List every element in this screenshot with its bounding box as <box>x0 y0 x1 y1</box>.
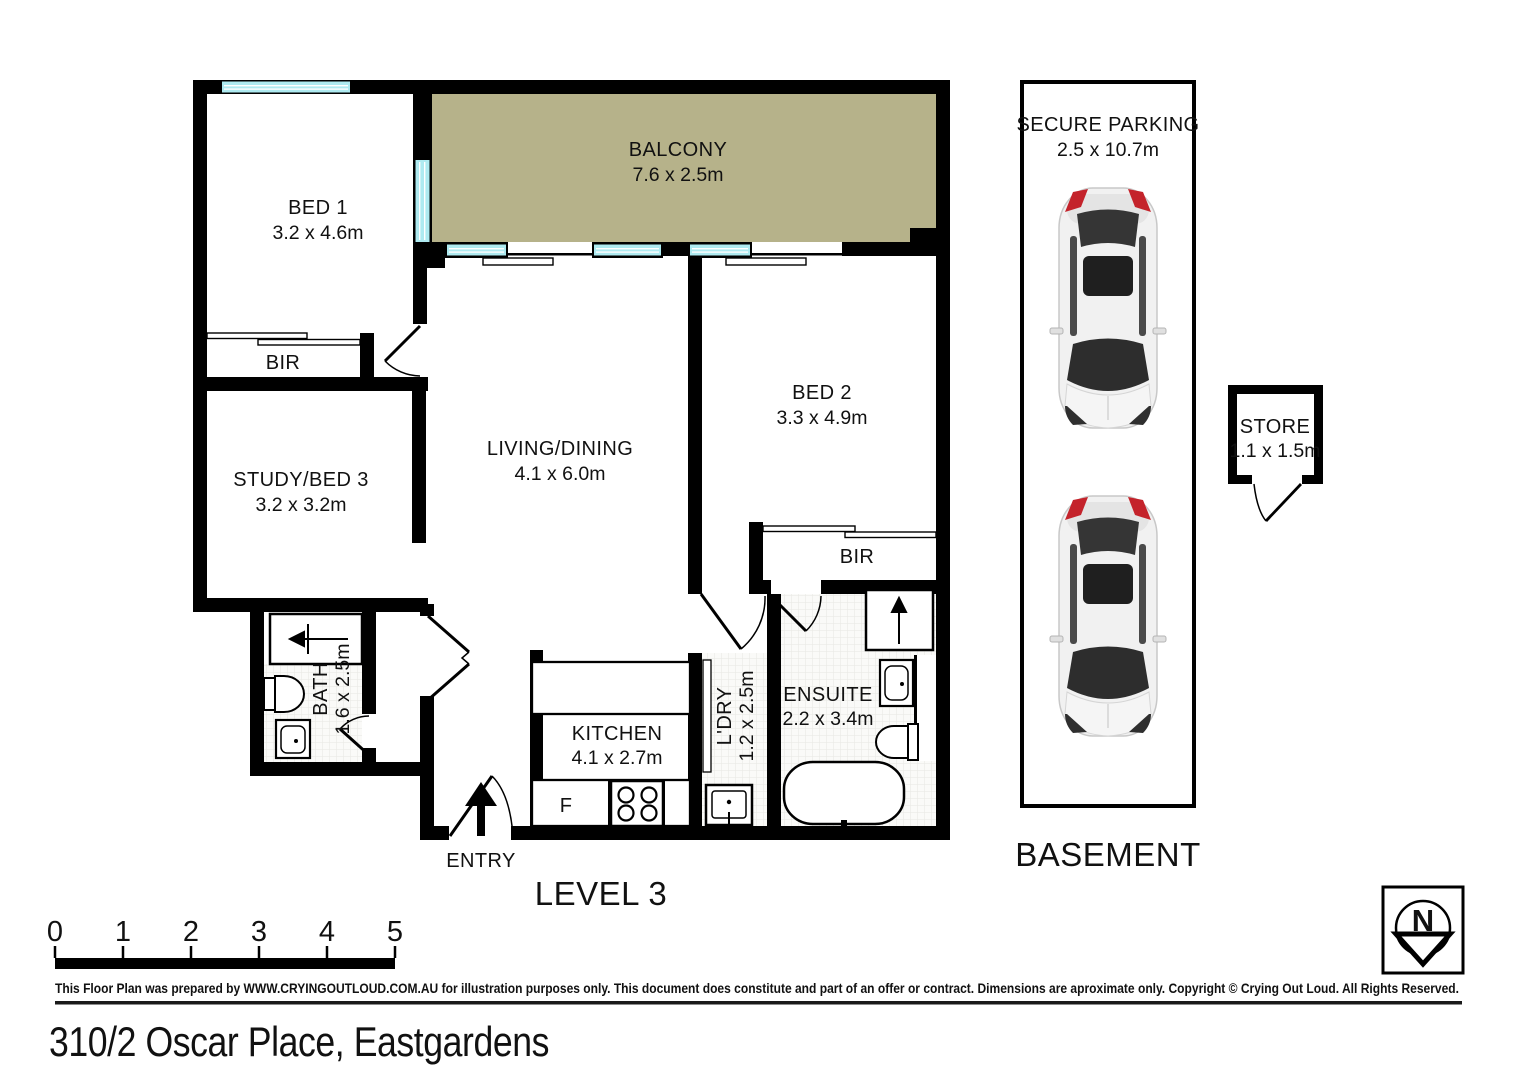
room-balcony-label: BALCONY <box>629 139 727 161</box>
car-1 <box>1050 188 1166 428</box>
room-kitchen-dims: 4.1 x 2.7m <box>571 747 662 769</box>
scale-tick-3: 3 <box>251 916 267 948</box>
parking-dims: 2.5 x 10.7m <box>1057 139 1159 161</box>
room-bed2-dims: 3.3 x 4.9m <box>776 407 867 429</box>
room-ensuite-label: ENSUITE <box>783 684 872 706</box>
level3-label: LEVEL 3 <box>535 875 668 912</box>
room-study-label: STUDY/BED 3 <box>233 469 369 491</box>
window-balcony-door-2 <box>592 242 663 258</box>
room-study-dims: 3.2 x 3.2m <box>255 494 346 516</box>
north-letter: N <box>1412 903 1434 938</box>
kitchen-counter <box>532 662 690 714</box>
room-bath-dims: 1.6 x 2.5m <box>332 643 354 734</box>
room-bed2-label: BED 2 <box>792 382 852 404</box>
window-balcony-door-1 <box>445 242 508 258</box>
room-bed1-label: BED 1 <box>288 197 348 219</box>
floor-plan-page: BED 1 3.2 x 4.6m BALCONY 7.6 x 2.5m BED … <box>0 0 1534 1084</box>
laundry-door-panel <box>703 660 711 772</box>
bir2-track <box>763 526 855 532</box>
room-bir1-label: BIR <box>266 352 301 374</box>
room-kitchen-label: KITCHEN <box>572 723 663 745</box>
balcony-track-1 <box>483 258 553 265</box>
store-label: STORE <box>1240 416 1311 438</box>
bir1-track <box>258 340 360 346</box>
bathtub-icon <box>784 762 904 832</box>
scale-tick-2: 2 <box>183 916 199 948</box>
room-bath-label: BATH <box>310 662 332 715</box>
window-bed1 <box>222 82 350 93</box>
parking-label: SECURE PARKING <box>1016 114 1199 136</box>
store-dims: 1.1 x 1.5m <box>1229 440 1320 462</box>
scale-bar: 0 1 2 3 4 5 <box>47 916 403 969</box>
scale-tick-4: 4 <box>319 916 335 948</box>
window-balcony-door-3 <box>688 242 752 258</box>
bir1-track <box>207 333 307 339</box>
car-2 <box>1050 496 1166 736</box>
door-bed1 <box>385 326 420 376</box>
scale-tick-0: 0 <box>47 916 63 948</box>
footer-divider <box>55 1001 1462 1005</box>
toilet-icon <box>876 724 918 760</box>
room-balcony-dims: 7.6 x 2.5m <box>632 164 723 186</box>
basement-label: BASEMENT <box>1015 836 1201 873</box>
door-bed2 <box>701 594 765 649</box>
stove-icon <box>611 781 663 826</box>
fridge-label: F <box>560 795 573 817</box>
bir2-track <box>845 532 936 538</box>
room-living-dims: 4.1 x 6.0m <box>514 463 605 485</box>
basement-section: SECURE PARKING 2.5 x 10.7m STORE 1.1 x 1… <box>1015 82 1323 873</box>
disclaimer-text: This Floor Plan was prepared by WWW.CRYI… <box>55 981 1459 996</box>
room-ensuite-dims: 2.2 x 3.4m <box>782 708 873 730</box>
balcony-track-2 <box>726 258 806 265</box>
toilet-icon <box>264 676 304 712</box>
sink-icon <box>880 660 913 706</box>
floor-plan-svg: BED 1 3.2 x 4.6m BALCONY 7.6 x 2.5m BED … <box>0 0 1534 1084</box>
entry-label: ENTRY <box>446 850 515 872</box>
scale-tick-1: 1 <box>115 916 131 948</box>
store-room: STORE 1.1 x 1.5m <box>1228 385 1323 521</box>
scale-tick-5: 5 <box>387 916 403 948</box>
door-double-hall <box>428 616 469 700</box>
room-living-label: LIVING/DINING <box>487 438 633 460</box>
room-bir2-label: BIR <box>840 546 875 568</box>
laundry-sink-icon <box>706 785 752 825</box>
room-laundry-label: L'DRY <box>714 687 736 746</box>
room-bed1-dims: 3.2 x 4.6m <box>272 222 363 244</box>
sink-icon <box>276 720 310 758</box>
window-balcony-left <box>413 158 432 244</box>
room-laundry-dims: 1.2 x 2.5m <box>736 670 758 761</box>
address-title: 310/2 Oscar Place, Eastgardens <box>49 1018 549 1065</box>
door-store <box>1254 484 1266 521</box>
north-compass: N <box>1383 887 1463 973</box>
